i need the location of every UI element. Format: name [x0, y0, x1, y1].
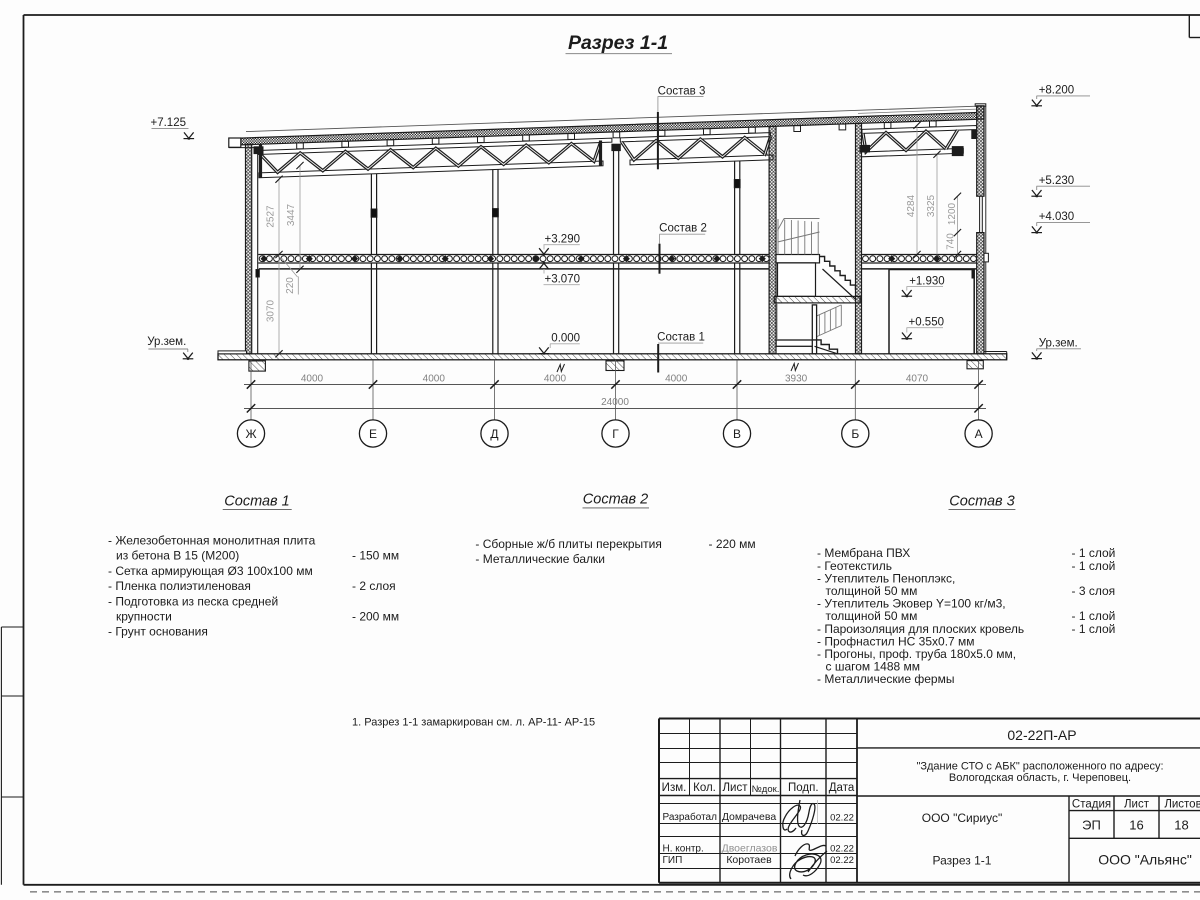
svg-text:Ур.зем.: Ур.зем. [147, 336, 186, 348]
svg-text:3325: 3325 [926, 194, 937, 217]
svg-text:ООО "Сириус": ООО "Сириус" [922, 811, 1002, 825]
svg-text:- Металлические балки: - Металлические балки [475, 552, 605, 566]
svg-text:Подп.: Подп. [788, 782, 819, 794]
svg-text:№док.: №док. [752, 784, 780, 795]
svg-text:+3.070: +3.070 [545, 273, 581, 285]
svg-text:В: В [733, 427, 741, 441]
svg-text:- 2 слоя: - 2 слоя [352, 579, 396, 593]
svg-text:Лист: Лист [1124, 799, 1150, 811]
svg-text:4000: 4000 [301, 374, 324, 385]
svg-text:Д: Д [490, 427, 498, 441]
svg-text:Вологодская область, г. Черепо: Вологодская область, г. Череповец. [949, 772, 1131, 784]
svg-text:+3.290: +3.290 [545, 233, 581, 245]
svg-text:+0.550: +0.550 [909, 316, 945, 328]
svg-text:02.22: 02.22 [830, 855, 854, 866]
svg-text:02.22: 02.22 [830, 812, 854, 823]
svg-text:Г: Г [612, 427, 619, 441]
svg-text:Листов: Листов [1164, 799, 1200, 811]
svg-text:Б: Б [851, 427, 859, 441]
svg-text:Состав 2: Состав 2 [659, 223, 707, 235]
svg-text:4000: 4000 [665, 374, 688, 385]
svg-text:16: 16 [1129, 818, 1143, 833]
svg-text:- 1 слой: - 1 слой [1072, 559, 1116, 573]
svg-text:Ж: Ж [245, 427, 256, 441]
svg-text:Состав 3: Состав 3 [658, 85, 706, 97]
svg-text:ООО "Альянс": ООО "Альянс" [1098, 852, 1192, 868]
svg-text:Кол.: Кол. [693, 782, 716, 794]
svg-text:+5.230: +5.230 [1039, 175, 1075, 187]
svg-text:Разработал: Разработал [663, 811, 718, 823]
svg-text:- Железобетонная монолитная п: - Железобетонная монолитная плита [108, 534, 316, 548]
svg-text:- 1 слой: - 1 слой [1072, 622, 1116, 636]
svg-text:- Пленка полиэтиленовая: - Пленка полиэтиленовая [108, 579, 251, 593]
svg-text:Состав 1: Состав 1 [224, 493, 289, 509]
svg-text:- 220 мм: - 220 мм [709, 537, 756, 551]
svg-text:+7.125: +7.125 [151, 117, 187, 129]
svg-text:- Металлические фермы: - Металлические фермы [817, 672, 954, 686]
svg-text:18: 18 [1174, 818, 1188, 833]
svg-text:Дата: Дата [829, 782, 855, 794]
svg-text:4284: 4284 [906, 194, 917, 217]
svg-text:- Сборные ж/б плиты перекрытия: - Сборные ж/б плиты перекрытия [475, 537, 661, 551]
svg-text:+4.030: +4.030 [1039, 211, 1075, 223]
svg-text:220: 220 [285, 277, 296, 294]
svg-text:А: А [975, 427, 983, 441]
svg-text:Разрез 1-1: Разрез 1-1 [568, 32, 668, 54]
svg-text:Состав 1: Состав 1 [657, 332, 705, 344]
svg-text:4000: 4000 [544, 374, 567, 385]
svg-text:3070: 3070 [265, 299, 276, 322]
svg-text:- Сетка армирующая Ø3 100х100: - Сетка армирующая Ø3 100х100 мм [108, 564, 313, 578]
svg-text:02-22П-АР: 02-22П-АР [1007, 727, 1076, 743]
svg-text:ГИП: ГИП [663, 855, 683, 866]
svg-text:Н. контр.: Н. контр. [663, 843, 704, 854]
svg-text:Разрез 1-1: Разрез 1-1 [933, 854, 992, 868]
svg-text:+1.930: +1.930 [909, 275, 945, 287]
svg-text:Состав 2: Состав 2 [583, 491, 648, 507]
svg-text:2527: 2527 [265, 205, 276, 228]
svg-text:крупности: крупности [116, 610, 172, 624]
svg-text:4070: 4070 [906, 374, 929, 385]
svg-text:Стадия: Стадия [1072, 799, 1111, 811]
svg-text:- 3 слоя: - 3 слоя [1072, 584, 1116, 598]
svg-text:Изм.: Изм. [662, 782, 687, 794]
svg-text:"Здание СТО с АБК" расположенн: "Здание СТО с АБК" расположенного по адр… [916, 760, 1163, 772]
svg-text:3447: 3447 [286, 203, 297, 226]
svg-text:1200: 1200 [947, 202, 958, 225]
svg-text:Ур.зем.: Ур.зем. [1039, 337, 1078, 349]
svg-text:- 200 мм: - 200 мм [352, 610, 399, 624]
svg-text:Е: Е [369, 427, 377, 441]
svg-text:3930: 3930 [785, 374, 808, 385]
svg-text:Коротаев: Коротаев [726, 854, 772, 866]
svg-text:Двоеглазов: Двоеглазов [722, 842, 778, 854]
svg-text:Лист: Лист [723, 782, 749, 794]
svg-text:+8.200: +8.200 [1039, 85, 1075, 97]
svg-text:Состав 3: Состав 3 [949, 493, 1014, 509]
svg-text:02.22: 02.22 [830, 843, 854, 854]
svg-text:- Подготовка из песка средней: - Подготовка из песка средней [108, 594, 278, 608]
svg-text:1. Разрез 1-1 замаркирован см.: 1. Разрез 1-1 замаркирован см. л. АР-11-… [352, 717, 595, 729]
svg-text:740: 740 [946, 233, 957, 250]
svg-text:4000: 4000 [423, 374, 446, 385]
svg-text:24000: 24000 [601, 397, 629, 408]
svg-text:ЭП: ЭП [1082, 818, 1101, 833]
svg-text:из бетона В 15 (М200): из бетона В 15 (М200) [116, 549, 239, 563]
svg-text:- Грунт основания: - Грунт основания [108, 625, 208, 639]
svg-text:Домрачева: Домрачева [722, 811, 777, 823]
svg-text:0.000: 0.000 [551, 332, 580, 344]
svg-text:- 150 мм: - 150 мм [352, 549, 399, 563]
